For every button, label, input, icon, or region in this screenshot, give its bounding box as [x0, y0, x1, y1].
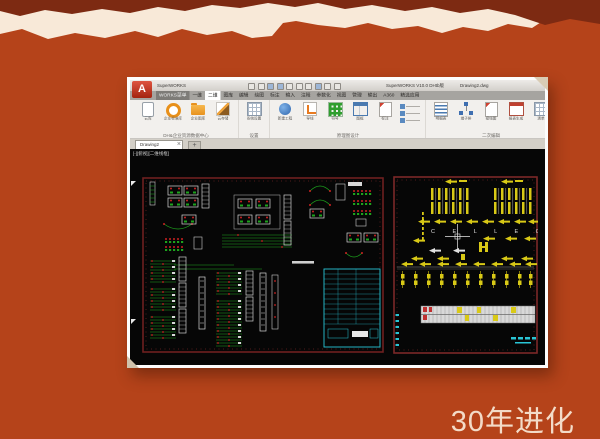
menu-tab[interactable]: 绘图	[251, 91, 267, 100]
schematic-cluster-left-arcs	[163, 215, 202, 251]
menu-tab[interactable]: A360	[380, 91, 397, 100]
window-title-version: SuperWORKS V10.0 DHtb版	[386, 83, 444, 88]
schematic-cluster-top-right	[309, 182, 362, 218]
menu-tab[interactable]: 标注	[267, 91, 283, 100]
list-icon[interactable]	[434, 102, 448, 117]
presentation-slide: SuperWORKS SuperWORKS V10.0 DHtb版 Drawin…	[0, 0, 600, 439]
divider-arrow-row	[397, 262, 537, 270]
grid-icon[interactable]	[328, 102, 343, 117]
globe-icon[interactable]	[279, 103, 291, 115]
slide-caption: 30年进化	[451, 398, 575, 439]
crosshair-cursor	[445, 224, 470, 250]
help-icon[interactable]	[334, 83, 341, 90]
wiring-table-strip	[421, 306, 535, 323]
tablet-icon[interactable]	[142, 102, 154, 117]
application-menu-button[interactable]: A	[132, 81, 152, 98]
schematic-cluster-bottom-center	[216, 271, 278, 347]
app-name: SuperWORKS	[157, 83, 186, 88]
wire-letters: C E L L E C	[431, 229, 538, 235]
ribbon: 云库 企业标准库 企业图库 云存储 DH&企业资源数据中心 系统设置 设置	[130, 100, 545, 139]
viewport-marker-icon	[131, 319, 136, 324]
doc-icon[interactable]	[379, 102, 392, 117]
mini-icon[interactable]	[400, 104, 405, 109]
drawing-canvas[interactable]: [-][俯视][二维线框]	[130, 149, 545, 365]
frame-icon[interactable]	[247, 102, 262, 116]
arrow-row-upper	[418, 219, 538, 224]
menu-tab[interactable]: 视图	[334, 91, 350, 100]
mini-icon[interactable]	[400, 111, 405, 116]
right-drawing-sheet: C E L L E C	[393, 176, 538, 354]
terminal-symbol-row	[401, 271, 533, 288]
mini-icon[interactable]	[400, 118, 405, 123]
close-icon[interactable]: ×	[177, 141, 181, 149]
print-icon[interactable]	[277, 83, 284, 90]
undo-icon[interactable]	[286, 83, 293, 90]
folded-corner-bottom-left	[127, 356, 139, 368]
ribbon-tab-row: WORKS菜单 一维 二维 图库 编辑 绘图 标注 输入 注释 参数化 视图 管…	[130, 91, 545, 100]
schematic-bus-lines	[174, 261, 314, 269]
schematic-cluster-top-left	[150, 182, 209, 208]
ribbon-group-schematic-design: 新建工程 导线 符号 图框 标注 原理图设计	[270, 100, 426, 138]
viewport-controls-label[interactable]: [-][俯视][二维线框]	[133, 151, 169, 156]
orgchart-icon[interactable]	[459, 102, 473, 115]
open-icon[interactable]	[258, 83, 265, 90]
menu-tab[interactable]: 图库	[220, 91, 236, 100]
window-title-filename: Drawing2.dwg	[460, 83, 489, 88]
refresh-icon[interactable]	[305, 83, 312, 90]
menu-tab[interactable]: 编辑	[236, 91, 252, 100]
menu-tab[interactable]: 管理	[349, 91, 365, 100]
ribbon-mini-buttons[interactable]	[400, 102, 420, 126]
redo-icon[interactable]	[296, 83, 303, 90]
menu-tab[interactable]: 输出	[365, 91, 381, 100]
ribbon-group-label: 设置	[249, 133, 258, 138]
wire-icon[interactable]	[303, 102, 317, 116]
menu-tab[interactable]: 一维	[189, 91, 205, 100]
left-drawing-sheet	[142, 177, 384, 353]
menu-tab-active[interactable]: 二维	[205, 91, 221, 100]
view-icon[interactable]	[315, 83, 322, 90]
schematic-cluster-far-right	[345, 190, 378, 257]
quick-access-toolbar[interactable]	[248, 83, 341, 90]
schematic-cluster-center	[222, 195, 292, 248]
ribbon-group-label: 二次编辑	[482, 133, 500, 138]
title-block-cyan-text	[511, 337, 536, 344]
ribbon-group-settings: 系统设置 设置	[239, 100, 270, 138]
pen-icon[interactable]	[216, 102, 230, 116]
table-red-icon[interactable]	[509, 102, 524, 116]
new-icon[interactable]	[248, 83, 255, 90]
ribbon-group-label: DH&企业资源数据中心	[163, 133, 209, 138]
menu-tab[interactable]: 参数化	[314, 91, 334, 100]
table-grid-icon[interactable]	[534, 102, 546, 116]
menu-tab[interactable]: 注释	[298, 91, 314, 100]
folder-icon[interactable]	[191, 105, 205, 115]
scattered-symbols	[411, 236, 536, 261]
save-icon[interactable]	[267, 83, 274, 90]
menu-tab[interactable]: 输入	[282, 91, 298, 100]
ribbon-group-resource-center: 云库 企业标准库 企业图库 云存储 DH&企业资源数据中心	[133, 100, 239, 138]
schematic-cyan-table	[324, 269, 380, 347]
ribbon-group-label: 原理图设计	[336, 133, 359, 138]
superworks-window: SuperWORKS SuperWORKS V10.0 DHtb版 Drawin…	[130, 80, 545, 365]
doc2-icon[interactable]	[485, 102, 498, 117]
table-blue-icon[interactable]	[353, 102, 368, 116]
ribbon-group-secondary-edit: 明细表 端子排 接线图 报表生成 清单 二次编辑	[426, 100, 545, 138]
menu-tab[interactable]: 精选应用	[397, 91, 422, 100]
folded-corner-top-right	[534, 77, 548, 91]
settings-icon[interactable]	[324, 83, 331, 90]
viewport-marker-icon	[131, 181, 136, 186]
cad-screenshot-frame: SuperWORKS SuperWORKS V10.0 DHtb版 Drawin…	[127, 77, 548, 368]
menu-tab-works[interactable]: WORKS菜单	[156, 91, 189, 100]
